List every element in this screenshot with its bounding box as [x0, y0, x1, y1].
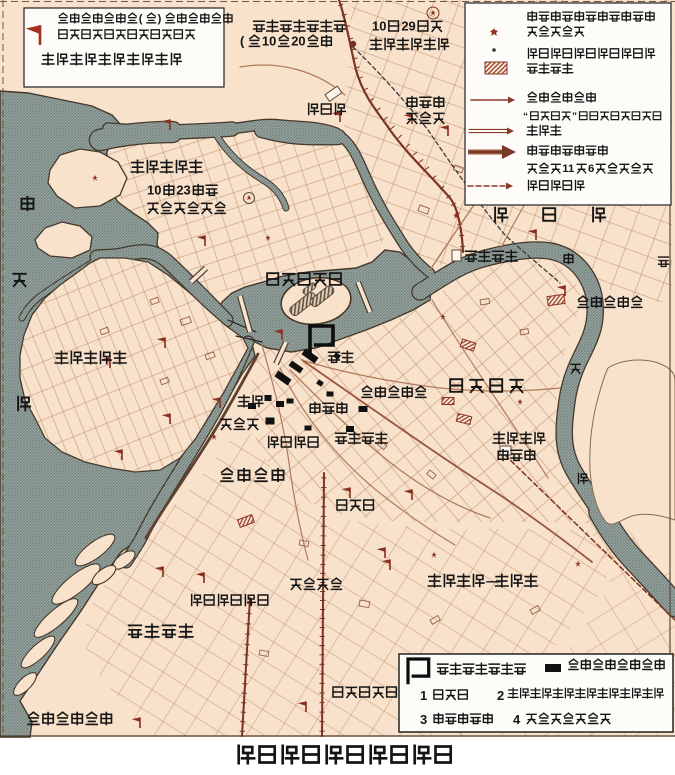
svg-text:(: ( [139, 13, 143, 25]
svg-text:1: 1 [420, 688, 427, 703]
svg-text:6: 6 [588, 163, 594, 175]
svg-text:20: 20 [291, 34, 305, 49]
svg-text:10: 10 [262, 34, 276, 49]
svg-text:10: 10 [147, 183, 161, 198]
svg-text:10: 10 [372, 19, 386, 34]
svg-text:4: 4 [513, 712, 521, 727]
svg-text:”: ” [572, 111, 577, 122]
svg-text:11: 11 [562, 163, 574, 175]
svg-text:29: 29 [401, 19, 415, 34]
svg-text:2: 2 [497, 688, 504, 703]
svg-text:“: “ [523, 111, 528, 122]
svg-text:23: 23 [176, 183, 190, 198]
svg-text:(: ( [240, 34, 245, 49]
svg-text:): ) [158, 13, 162, 25]
svg-text:3: 3 [420, 712, 427, 727]
